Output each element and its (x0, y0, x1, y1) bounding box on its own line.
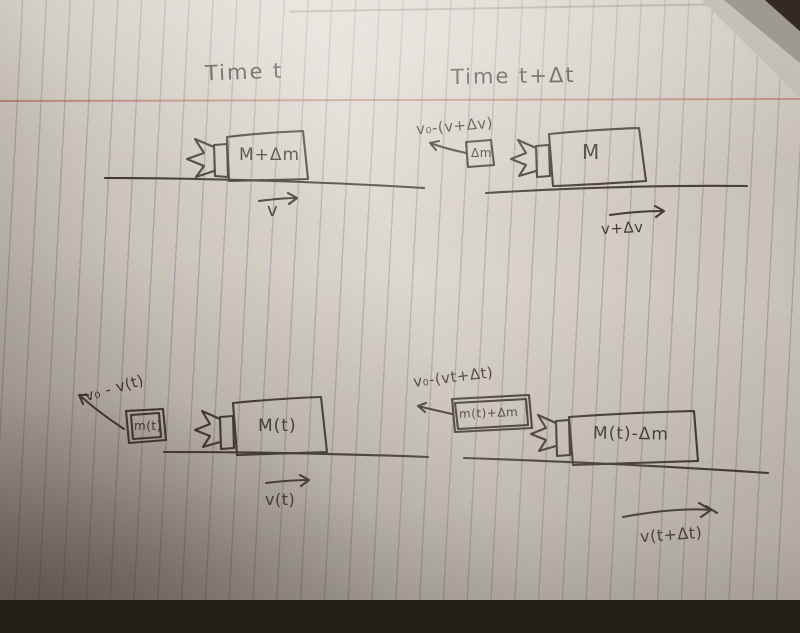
nozzle (556, 420, 570, 456)
label-velocity-top-left: v (267, 202, 278, 220)
ground-line (464, 458, 768, 473)
flame-zigzag-icon (531, 415, 556, 451)
flame-zigzag-icon (511, 140, 536, 176)
velocity-arrow (266, 475, 309, 486)
label-ejecta-box-bottom-right: m(t)+Δm (459, 406, 519, 420)
ejecta-arrow (418, 403, 452, 414)
velocity-arrow (610, 206, 664, 217)
heading-time-t-dt: Time t+Δt (451, 65, 576, 88)
ejecta-arrow (430, 141, 466, 153)
label-velocity-bottom-left: v(t) (265, 492, 295, 508)
label-mass-box-bottom-left: M(t) (258, 418, 297, 435)
ink-drawing (0, 0, 800, 600)
label-mass-box-top-left: M+Δm (239, 147, 300, 164)
label-mass-box-bottom-right: M(t)-Δm (593, 425, 669, 443)
label-velocity-bottom-right: v(t+Δt) (640, 525, 703, 545)
velocity-arrow (623, 503, 717, 517)
diagram-time-t-single-block (105, 131, 424, 204)
nozzle (214, 144, 228, 177)
diagram-time-t-functions (79, 395, 428, 486)
nozzle (220, 416, 234, 449)
photo-of-notebook-page: Time t Time t+Δt M+Δm v v₀-(v+Δv) Δm M v… (0, 0, 800, 600)
label-velocity-top-right: v+Δv (601, 220, 644, 237)
label-ejecta-box-bottom-left: m(t) (134, 420, 162, 432)
heading-time-t: Time t (205, 61, 284, 85)
flame-zigzag-icon (187, 139, 214, 177)
nozzle (536, 145, 550, 177)
ground-line (486, 186, 747, 193)
notebook-paper: Time t Time t+Δt M+Δm v v₀-(v+Δv) Δm M v… (0, 0, 800, 600)
flame-zigzag-icon (195, 411, 220, 447)
label-mass-box-top-right: M (582, 142, 600, 162)
label-ejecta-box-top-right: Δm (471, 147, 492, 159)
